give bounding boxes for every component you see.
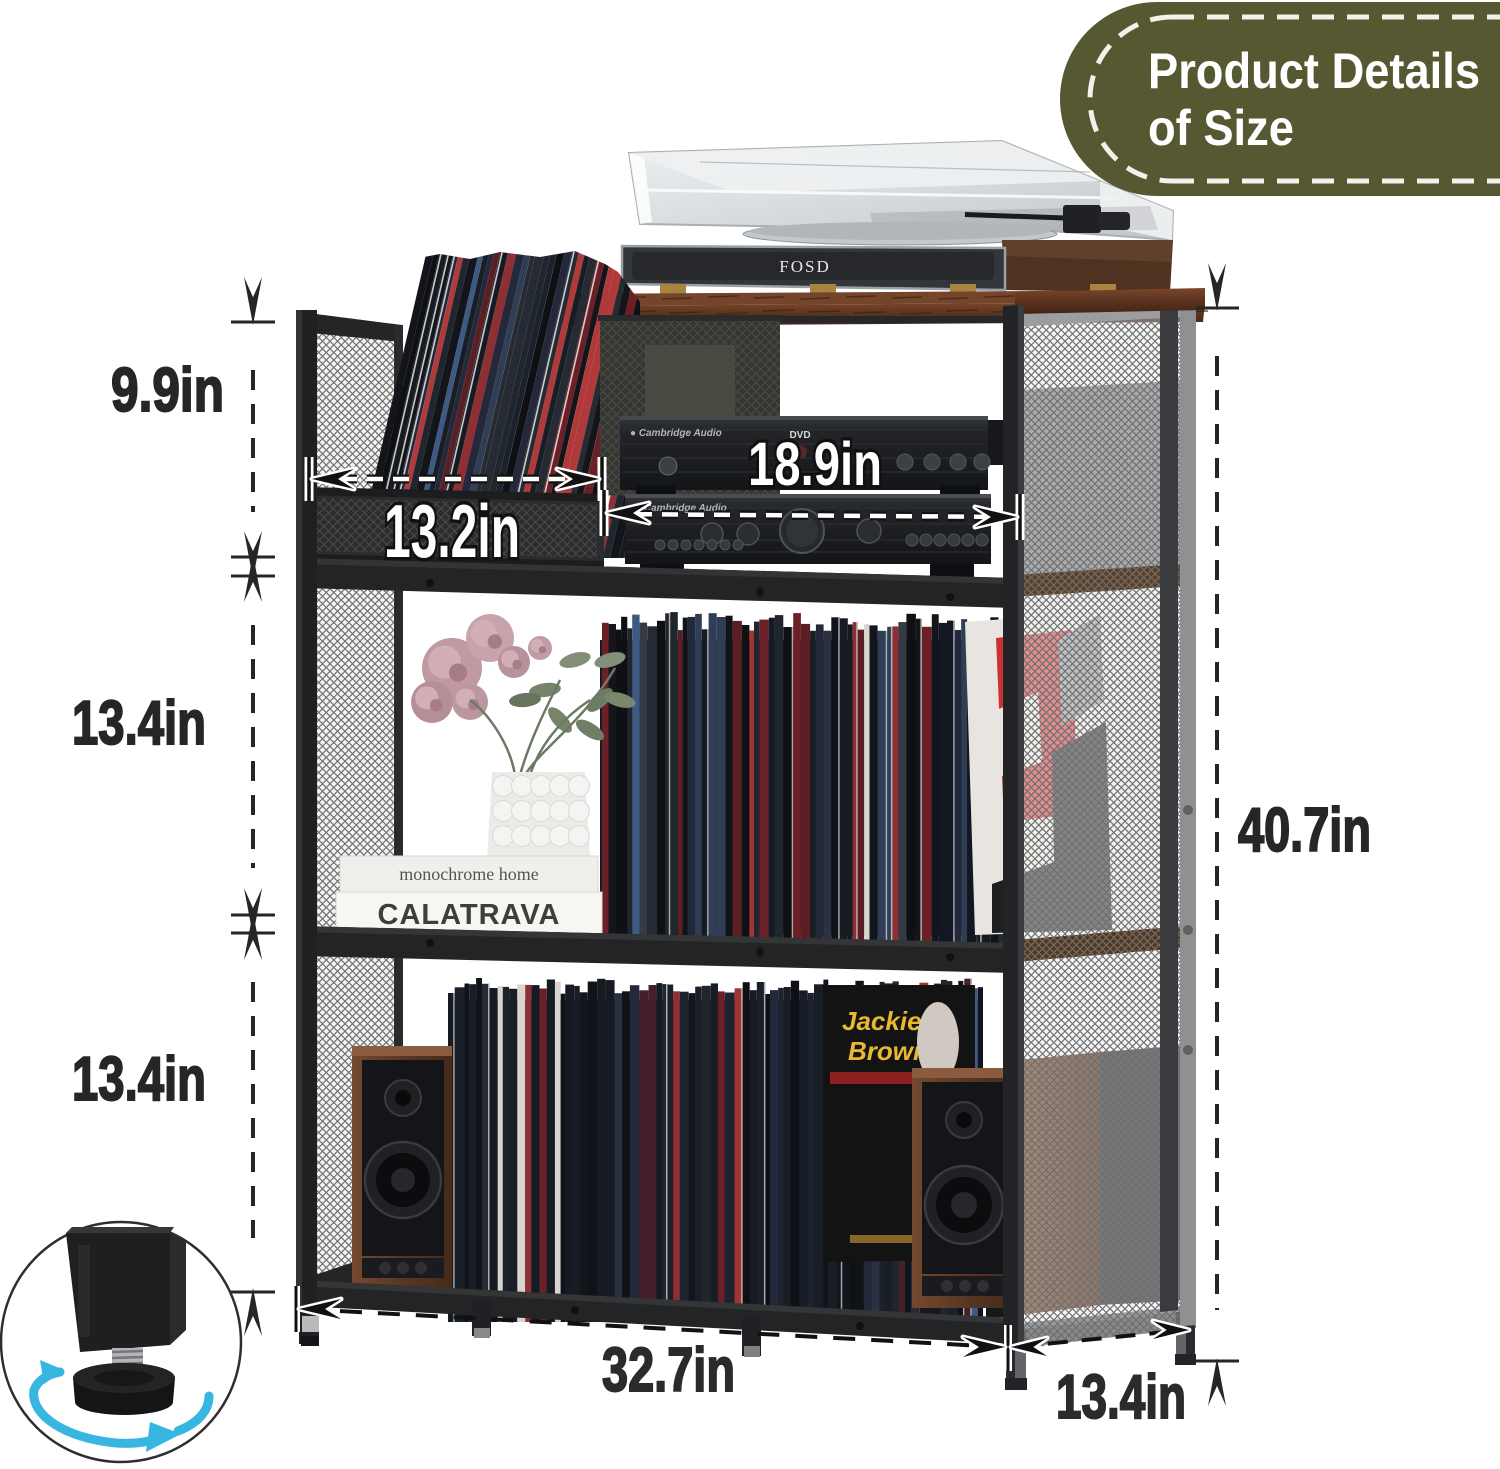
svg-text:13.2in: 13.2in <box>384 489 520 573</box>
svg-text:40.7in: 40.7in <box>1238 796 1371 865</box>
svg-text:Product Details: Product Details <box>1148 43 1480 99</box>
svg-text:13.4in: 13.4in <box>72 1045 206 1114</box>
svg-text:18.9in: 18.9in <box>748 430 882 498</box>
svg-text:32.7in: 32.7in <box>602 1336 735 1405</box>
svg-text:9.9in: 9.9in <box>111 356 224 425</box>
svg-text:CALATRAVA: CALATRAVA <box>378 899 561 931</box>
svg-text:Jackie: Jackie <box>842 1006 922 1036</box>
svg-text:13.4in: 13.4in <box>1056 1363 1186 1432</box>
svg-text:monochrome home: monochrome home <box>399 864 538 884</box>
svg-text:Brown: Brown <box>848 1036 929 1066</box>
svg-text:of Size: of Size <box>1148 100 1294 156</box>
svg-text:13.4in: 13.4in <box>72 689 206 758</box>
svg-text:FOSD: FOSD <box>779 257 830 276</box>
svg-text:● Cambridge Audio: ● Cambridge Audio <box>630 428 722 439</box>
